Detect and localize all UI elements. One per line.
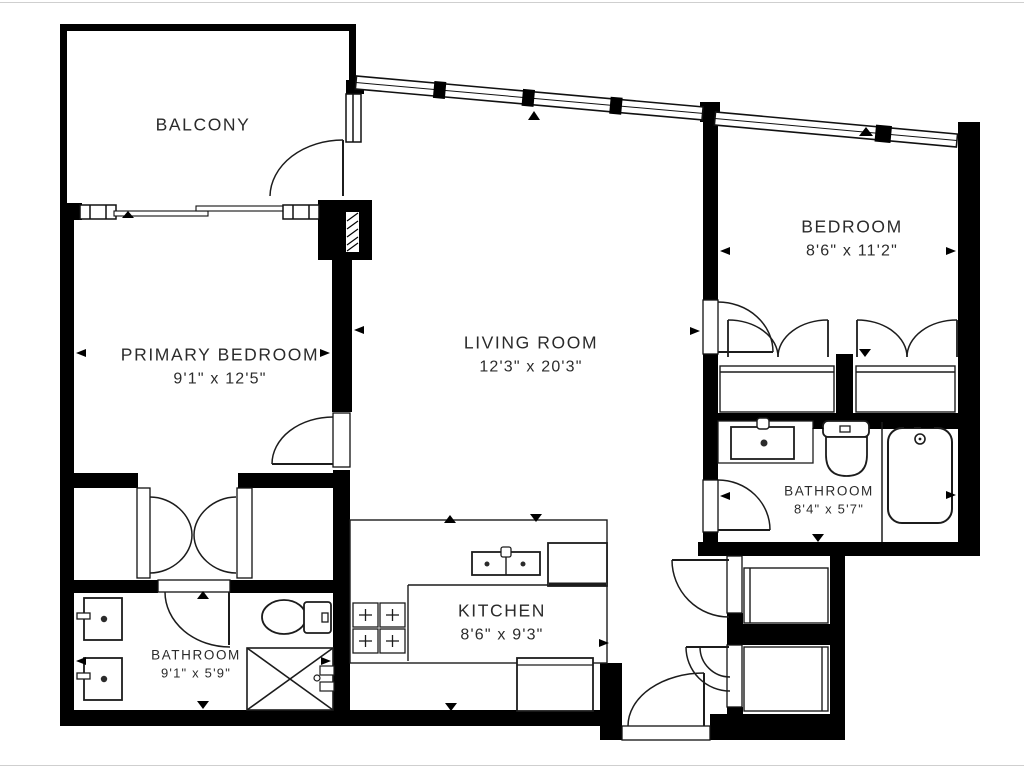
vanity-sink [77,658,122,700]
bathroom2-dims: 8'4" x 5'7" [784,501,874,519]
arrow-left [76,349,86,357]
bottom-outer-wall [60,710,610,726]
hall-closet2-door [686,647,730,691]
bedroom-closet-divider [836,354,853,429]
arrow-down [859,349,871,357]
hall-closet2-shelf [744,647,828,711]
living-room-dims: 12'3" x 20'3" [464,356,598,380]
primary-bottom-wall-right [238,473,350,488]
dishwasher [548,543,607,586]
bathroom2-left-wall-upper [703,429,718,480]
windows [80,74,958,219]
bedroom-closet-shelf-right [856,366,955,412]
structural-column [318,200,372,260]
hall-closet-divider-wall [727,624,830,645]
arrow-down [445,703,457,711]
hall-closet1-jamb [727,556,742,613]
bathroom2-label: BATHROOM 8'4" x 5'7" [784,482,874,519]
vanity-sink [77,598,122,640]
bathroom2-door-jamb [703,480,718,532]
closet-jamb-right [237,488,252,578]
arrow-down [530,514,542,522]
primary-bedroom-name: PRIMARY BEDROOM [121,343,319,368]
vanity-sink [718,418,813,463]
bedroom-entry-door [718,302,773,352]
balcony-right-wall [349,24,356,82]
balcony-name: BALCONY [156,113,251,138]
mullion [433,81,446,99]
primary-bedroom-door [272,417,333,464]
bedroom-door-jamb [703,300,718,354]
hall-closet2-jamb [727,645,742,707]
balcony-sliding-door [114,206,294,216]
primary-bedroom-label: PRIMARY BEDROOM 9'1" x 12'5" [121,343,319,392]
arrow-left [720,247,730,255]
bedroom-label: BEDROOM 8'6" x 11'2" [801,215,903,264]
primary-bottom-wall-left [74,473,138,488]
balcony-door [270,140,343,196]
hall-closet1-door [672,560,729,617]
balcony-window-right [283,205,319,219]
bathroom2-bottom-wall [698,542,980,556]
bedroom-left-wall [703,108,718,300]
entry-threshold [622,726,710,740]
mullion [609,97,622,115]
mullion [875,125,892,143]
living-room-label: LIVING ROOM 12'3" x 20'3" [464,331,598,380]
bathroom1-top-wall-left [60,580,158,593]
bathroom1-dims: 9'1" x 5'9" [151,665,241,683]
hall-closet1-shelf [744,568,828,623]
bathroom1-door-threshold [158,580,230,592]
living-room-name: LIVING ROOM [464,331,598,356]
primary-door-jamb [333,413,350,467]
double-kitchen-sink [472,547,540,575]
mullion [522,89,535,107]
arrow-right [690,327,700,335]
wall-chunk [727,707,743,720]
bathroom1-top-wall-right [230,580,350,593]
column-hatch [346,212,359,252]
arrow-right [320,349,330,357]
bathroom2-fixtures [718,418,952,542]
primary-living-wall [332,260,352,412]
primary-bedroom-dims: 9'1" x 12'5" [121,368,319,392]
toilet [823,421,869,476]
balcony-label: BALCONY [156,113,251,138]
arrow-down [812,534,824,542]
bathroom2-left-wall-lower [703,532,718,556]
balcony-window-left [80,205,116,219]
refrigerator [517,658,593,711]
entry-step-wall [600,663,622,740]
wall-corner [60,203,82,220]
arrow-up [528,111,540,120]
arrow-left [354,326,364,334]
right-outer-wall [958,122,980,556]
gas-range [353,603,405,653]
kitchen-dims: 8'6" x 9'3" [458,624,546,648]
bathtub [888,420,952,523]
bedroom-dims: 8'6" x 11'2" [801,240,903,264]
arrow-right [946,247,956,255]
bathroom2-door [718,480,770,530]
bathroom2-name: BATHROOM [784,482,874,501]
bathroom1-name: BATHROOM [151,646,241,665]
arrow-left [76,657,86,665]
left-outer-wall [60,203,74,725]
bedroom-closet-shelf-left [720,366,834,412]
toilet [262,600,331,634]
bedroom-glass-wall [714,110,958,149]
arrow-down [197,701,209,709]
bedroom-name: BEDROOM [801,215,903,240]
balcony-top-wall [60,24,356,31]
wall-chunk [727,613,743,626]
living-room-glass-wall [355,74,703,122]
shower [247,648,334,710]
hall-right-wall [830,553,845,723]
entry-door [628,673,704,726]
kitchen-label: KITCHEN 8'6" x 9'3" [458,599,546,648]
bathroom1-door [165,592,230,647]
arrow-up [444,515,456,523]
primary-closet-bifold-doors [150,497,236,573]
kitchen-name: KITCHEN [458,599,546,624]
floor-plan: BALCONY PRIMARY BEDROOM 9'1" x 12'5" LIV… [0,0,1024,768]
bathroom1-label: BATHROOM 9'1" x 5'9" [151,646,241,683]
balcony-left-wall [60,24,67,206]
closet-jamb-left [137,488,150,578]
arrow-left [720,492,730,500]
bedroom-left-wall-lower [703,354,718,430]
balcony-side-window [346,94,361,142]
